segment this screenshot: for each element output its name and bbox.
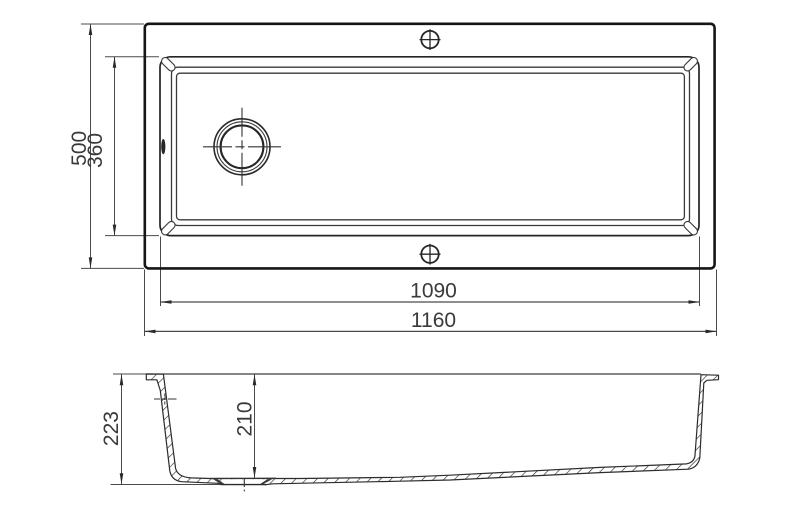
svg-text:1090: 1090 [410, 279, 457, 302]
svg-text:360: 360 [84, 133, 107, 168]
svg-text:210: 210 [234, 401, 257, 436]
svg-text:223: 223 [100, 411, 123, 446]
svg-text:1160: 1160 [411, 309, 456, 332]
